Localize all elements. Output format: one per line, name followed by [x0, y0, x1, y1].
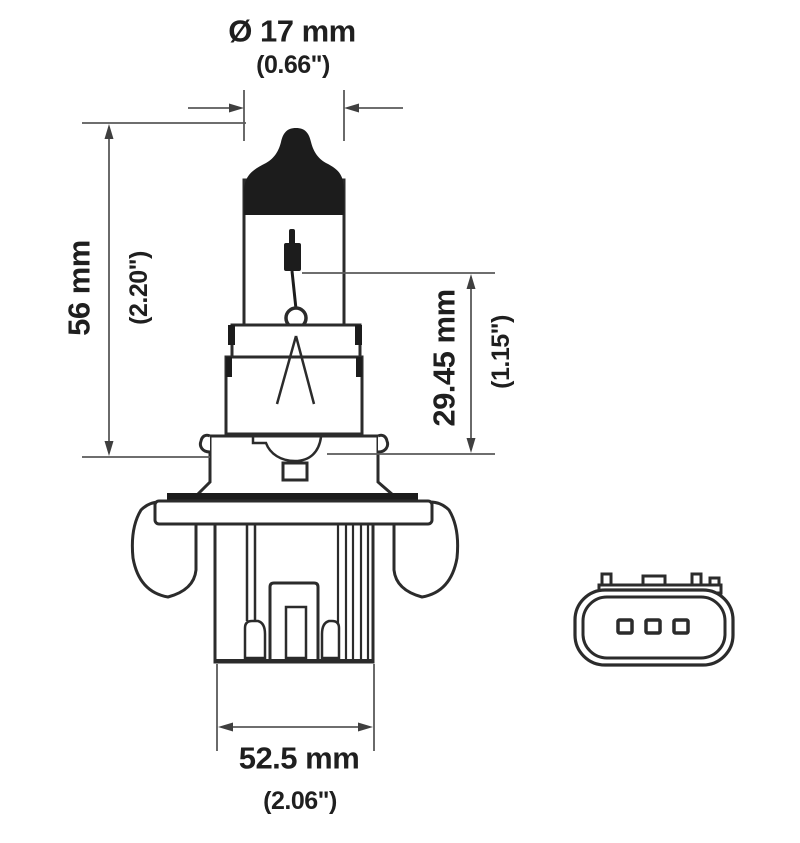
clip-left [245, 621, 265, 658]
dim-base-inch-label: (2.06") [263, 787, 337, 815]
key-rect [283, 463, 307, 480]
dim-glass-inch-label: (1.15") [487, 315, 515, 389]
ring-tab-right [355, 325, 362, 345]
neck-ring [232, 325, 360, 357]
connector-pins [618, 620, 688, 633]
arrowhead [229, 104, 244, 113]
body-mark-right [356, 357, 362, 377]
body-mark-left [226, 357, 232, 377]
base-housing [215, 524, 373, 662]
arrowhead [467, 438, 476, 453]
ring-tab-left [228, 325, 235, 345]
pin-2 [646, 620, 660, 633]
tower-slot [286, 607, 306, 658]
pin-1 [618, 620, 632, 633]
arrowhead [467, 274, 476, 289]
arrowhead [218, 723, 233, 732]
dim-base-mm-label: 52.5 mm [239, 741, 360, 776]
dim-overall-inch-label: (2.20") [125, 251, 153, 325]
dim-diameter-mm-label: Ø 17 mm [228, 14, 355, 49]
filament-capsule [284, 243, 301, 271]
bulb-side-view [132, 128, 457, 662]
dim-diameter-inch-label: (0.66") [256, 51, 330, 79]
arrowhead [105, 124, 114, 139]
clip-right [322, 621, 339, 658]
flange-disc [155, 501, 432, 524]
arrowhead [358, 723, 373, 732]
connector-front-view [575, 574, 733, 665]
dim-glass-mm-label: 29.45 mm [427, 289, 462, 426]
dim-base-width: 52.5 mm (2.06") [217, 664, 374, 815]
dim-diameter: Ø 17 mm (0.66") [188, 14, 403, 142]
dim-overall-mm-label: 56 mm [62, 240, 97, 336]
arrowhead [105, 441, 114, 456]
black-tip [244, 128, 344, 215]
pin-3 [674, 620, 688, 633]
base-collar [197, 435, 393, 495]
bulb-diagram: Ø 17 mm (0.66") 56 mm (2.20") 29.45 mm (… [0, 0, 800, 843]
filament-rod [289, 229, 295, 245]
technical-drawing-canvas: Ø 17 mm (0.66") 56 mm (2.20") 29.45 mm (… [0, 0, 800, 843]
collar-hook-left [200, 435, 210, 452]
upper-body [226, 357, 362, 434]
dim-overall-length: 56 mm (2.20") [62, 123, 247, 457]
base-neck [226, 325, 362, 434]
arrowhead [344, 104, 359, 113]
collar-hook-right [378, 435, 388, 452]
